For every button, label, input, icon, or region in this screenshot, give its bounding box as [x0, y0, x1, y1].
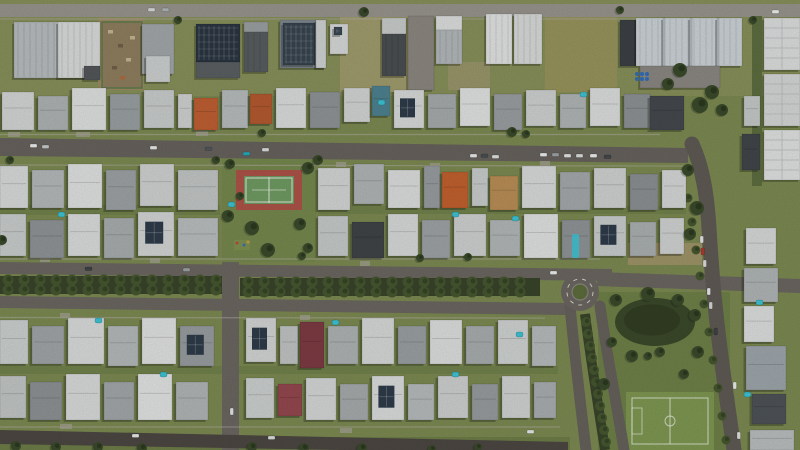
photo-grain	[0, 0, 800, 450]
aerial-photograph	[0, 0, 800, 450]
aerial-neighborhood-scene	[0, 0, 800, 450]
